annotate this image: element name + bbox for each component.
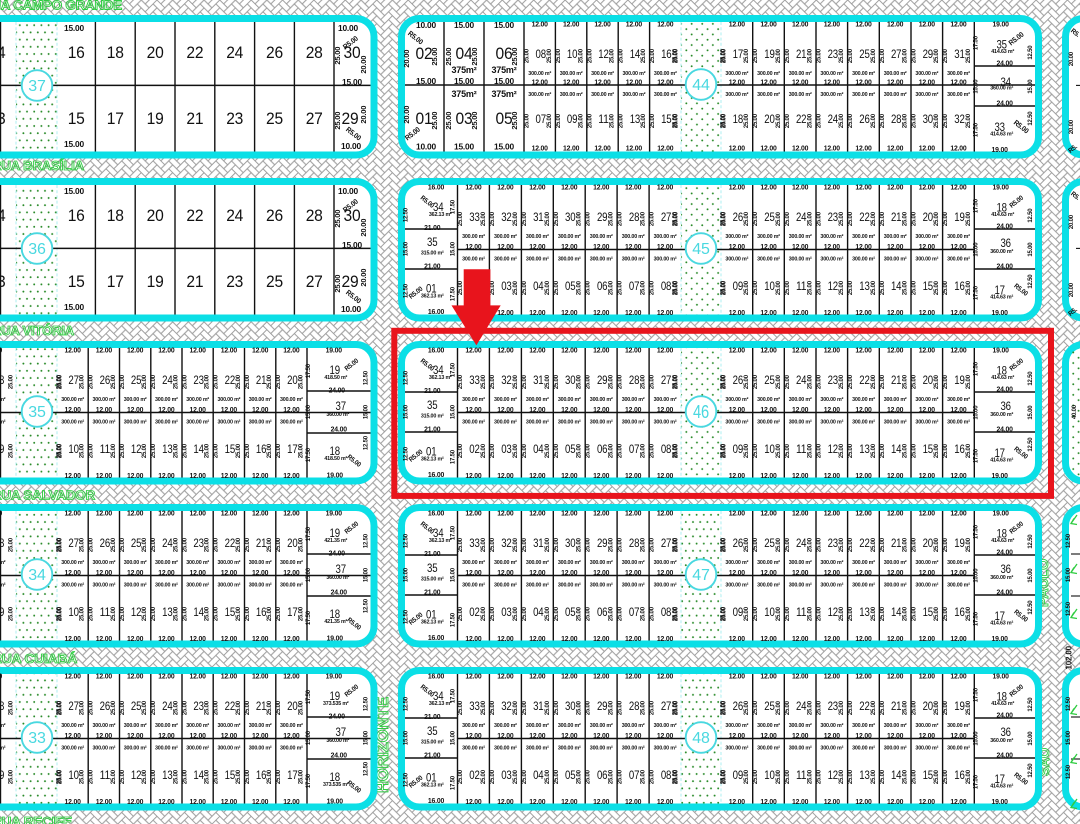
svg-text:15.00: 15.00: [64, 186, 85, 196]
svg-text:20: 20: [923, 373, 934, 387]
svg-text:20.00: 20.00: [1068, 282, 1075, 297]
svg-text:23: 23: [226, 109, 243, 128]
svg-text:12.50: 12.50: [403, 772, 410, 787]
svg-text:25.00: 25.00: [275, 374, 282, 389]
svg-text:300.00 m²: 300.00 m²: [725, 419, 748, 426]
svg-text:25.00: 25.00: [838, 700, 845, 715]
svg-text:25.00: 25.00: [141, 537, 148, 552]
svg-text:300.00 m²: 300.00 m²: [884, 745, 907, 752]
svg-text:12.00: 12.00: [824, 634, 840, 643]
svg-text:12.00: 12.00: [950, 78, 966, 87]
svg-text:12.00: 12.00: [919, 183, 935, 192]
svg-text:25.00: 25.00: [244, 700, 251, 715]
svg-text:12.00: 12.00: [729, 183, 745, 192]
svg-text:15.00: 15.00: [1027, 568, 1034, 583]
svg-text:12.00: 12.00: [158, 731, 174, 740]
svg-text:19.00: 19.00: [992, 634, 1008, 643]
svg-text:12.00: 12.00: [887, 568, 903, 577]
svg-text:373.535 m²: 373.535 m²: [323, 700, 349, 707]
svg-text:25.00: 25.00: [79, 769, 86, 784]
svg-text:300.00 m²: 300.00 m²: [61, 582, 84, 589]
svg-text:12.00: 12.00: [657, 144, 673, 153]
svg-text:RUA RECIFE: RUA RECIFE: [0, 815, 72, 824]
svg-text:28: 28: [306, 43, 323, 62]
svg-text:25.00: 25.00: [933, 113, 940, 128]
svg-text:31: 31: [533, 373, 544, 387]
svg-text:10: 10: [764, 605, 775, 619]
svg-text:25.00: 25.00: [649, 606, 656, 621]
svg-text:12.00: 12.00: [729, 308, 745, 317]
svg-text:25.00: 25.00: [870, 280, 877, 295]
svg-text:25.00: 25.00: [910, 606, 917, 621]
svg-text:300.00 m²: 300.00 m²: [494, 396, 517, 403]
svg-text:12.00: 12.00: [657, 471, 673, 480]
svg-text:31: 31: [954, 47, 965, 61]
svg-text:12.00: 12.00: [919, 568, 935, 577]
svg-text:25.00: 25.00: [150, 443, 157, 458]
svg-text:25.00: 25.00: [235, 700, 242, 715]
svg-text:25.00: 25.00: [235, 374, 242, 389]
svg-text:12.00: 12.00: [625, 405, 641, 414]
svg-text:16.00: 16.00: [428, 796, 444, 805]
svg-text:300.00 m²: 300.00 m²: [61, 745, 84, 752]
svg-text:25.00: 25.00: [673, 211, 680, 226]
svg-text:25.00: 25.00: [617, 606, 624, 621]
svg-text:300.00 m²: 300.00 m²: [725, 722, 748, 729]
svg-text:25.00: 25.00: [649, 280, 656, 295]
svg-text:25.00: 25.00: [544, 769, 551, 784]
svg-text:12.50: 12.50: [363, 761, 370, 776]
svg-text:12.00: 12.00: [919, 308, 935, 317]
svg-text:25: 25: [764, 373, 775, 387]
svg-text:360.00 m²: 360.00 m²: [326, 737, 349, 744]
svg-text:12.00: 12.00: [532, 144, 548, 153]
svg-text:12.00: 12.00: [252, 568, 268, 577]
svg-text:25.00: 25.00: [775, 700, 782, 715]
svg-text:12.00: 12.00: [65, 405, 81, 414]
svg-text:17.50: 17.50: [972, 687, 979, 702]
svg-text:25.00: 25.00: [173, 374, 180, 389]
svg-text:24: 24: [828, 112, 839, 126]
svg-text:25.00: 25.00: [182, 700, 189, 715]
svg-text:25.00: 25.00: [480, 700, 487, 715]
svg-text:16: 16: [954, 605, 965, 619]
svg-text:27: 27: [68, 373, 79, 387]
svg-text:25.00: 25.00: [119, 374, 126, 389]
svg-text:RUA VITÓRIA: RUA VITÓRIA: [0, 323, 74, 338]
svg-text:300.00 m²: 300.00 m²: [789, 559, 812, 566]
svg-text:25.00: 25.00: [585, 537, 592, 552]
svg-text:300.00 m²: 300.00 m²: [622, 419, 645, 426]
svg-text:25.00: 25.00: [8, 537, 15, 552]
svg-text:300.00 m²: 300.00 m²: [622, 722, 645, 729]
svg-text:25.00: 25.00: [752, 374, 759, 389]
svg-text:25.00: 25.00: [933, 606, 940, 621]
svg-text:15.00: 15.00: [403, 404, 410, 419]
svg-text:25.00: 25.00: [480, 443, 487, 458]
svg-text:21: 21: [186, 109, 203, 128]
svg-text:12.00: 12.00: [497, 346, 513, 355]
svg-text:12.00: 12.00: [887, 797, 903, 806]
svg-text:25.00: 25.00: [298, 606, 305, 621]
svg-text:25.00: 25.00: [870, 113, 877, 128]
svg-text:12.00: 12.00: [221, 471, 237, 480]
svg-text:29: 29: [923, 47, 934, 61]
svg-text:25.00: 25.00: [544, 211, 551, 226]
svg-text:300.00 m²: 300.00 m²: [186, 559, 209, 566]
svg-text:12.50: 12.50: [363, 598, 370, 613]
svg-text:12.00: 12.00: [760, 634, 776, 643]
svg-text:11: 11: [100, 605, 111, 619]
svg-text:25.00: 25.00: [512, 537, 519, 552]
svg-text:300.00 m²: 300.00 m²: [558, 419, 581, 426]
svg-text:25.00: 25.00: [815, 606, 822, 621]
svg-text:12.00: 12.00: [127, 634, 143, 643]
svg-text:25: 25: [859, 47, 870, 61]
svg-text:12.00: 12.00: [729, 405, 745, 414]
svg-text:12.00: 12.00: [729, 568, 745, 577]
svg-text:300.00 m²: 300.00 m²: [280, 419, 303, 426]
svg-text:12.00: 12.00: [593, 346, 609, 355]
svg-text:10.00: 10.00: [416, 141, 437, 151]
svg-text:25.00: 25.00: [119, 443, 126, 458]
svg-text:300.00 m²: 300.00 m²: [789, 419, 812, 426]
svg-text:15.00: 15.00: [494, 141, 515, 151]
svg-text:15.00: 15.00: [305, 730, 312, 745]
svg-text:25.00: 25.00: [585, 374, 592, 389]
svg-text:12.00: 12.00: [729, 144, 745, 153]
svg-text:300.00 m²: 300.00 m²: [789, 233, 812, 240]
svg-text:362.13 m²: 362.13 m²: [429, 537, 452, 544]
svg-text:25.00: 25.00: [235, 537, 242, 552]
svg-text:25.00: 25.00: [965, 769, 972, 784]
svg-text:12.00: 12.00: [190, 797, 206, 806]
svg-text:27: 27: [891, 47, 902, 61]
svg-text:12.00: 12.00: [792, 144, 808, 153]
svg-text:25.00: 25.00: [720, 211, 727, 226]
svg-text:300.00 m²: 300.00 m²: [526, 559, 549, 566]
svg-text:12.00: 12.00: [824, 405, 840, 414]
svg-text:25.00: 25.00: [182, 443, 189, 458]
svg-text:30: 30: [923, 112, 934, 126]
svg-text:25.00: 25.00: [298, 769, 305, 784]
svg-text:12.00: 12.00: [792, 346, 808, 355]
svg-text:40.00: 40.00: [1071, 404, 1078, 419]
svg-text:12.00: 12.00: [855, 405, 871, 414]
svg-text:05: 05: [565, 768, 576, 782]
svg-text:04: 04: [533, 442, 544, 456]
svg-text:15.00: 15.00: [305, 404, 312, 419]
svg-text:13: 13: [859, 279, 870, 293]
svg-text:25.00: 25.00: [838, 443, 845, 458]
svg-text:300.00 m²: 300.00 m²: [820, 419, 843, 426]
svg-text:19.00: 19.00: [326, 346, 342, 355]
svg-text:25.00: 25.00: [965, 113, 972, 128]
svg-text:12.00: 12.00: [221, 634, 237, 643]
svg-text:12.50: 12.50: [1065, 601, 1072, 616]
svg-text:12.00: 12.00: [855, 144, 871, 153]
svg-text:300.00 m²: 300.00 m²: [884, 70, 907, 77]
svg-text:414.63 m²: 414.63 m²: [991, 48, 1014, 55]
svg-text:25.00: 25.00: [585, 211, 592, 226]
svg-text:24: 24: [226, 206, 243, 225]
svg-text:03: 03: [501, 768, 512, 782]
svg-text:20: 20: [923, 536, 934, 550]
svg-text:17.50: 17.50: [972, 198, 979, 213]
svg-text:300.00 m²: 300.00 m²: [789, 582, 812, 589]
svg-text:25.00: 25.00: [815, 537, 822, 552]
svg-text:25.00: 25.00: [910, 280, 917, 295]
svg-text:12.00: 12.00: [657, 20, 673, 29]
svg-text:12.00: 12.00: [824, 797, 840, 806]
svg-text:48: 48: [692, 730, 710, 747]
svg-text:25.00: 25.00: [333, 47, 342, 65]
svg-text:33: 33: [28, 730, 46, 747]
svg-text:21: 21: [256, 699, 267, 713]
svg-text:25.00: 25.00: [942, 769, 949, 784]
svg-text:300.00 m²: 300.00 m²: [725, 256, 748, 263]
svg-text:25.00: 25.00: [333, 210, 342, 228]
svg-text:14: 14: [630, 47, 641, 61]
svg-text:300.00 m²: 300.00 m²: [725, 582, 748, 589]
svg-text:12.00: 12.00: [950, 634, 966, 643]
svg-text:12.00: 12.00: [919, 797, 935, 806]
svg-text:25.00: 25.00: [910, 700, 917, 715]
svg-text:12.00: 12.00: [919, 144, 935, 153]
svg-text:21: 21: [256, 373, 267, 387]
svg-text:12.00: 12.00: [887, 509, 903, 518]
svg-text:25.00: 25.00: [213, 769, 220, 784]
svg-text:25.00: 25.00: [524, 48, 531, 63]
svg-text:25.00: 25.00: [910, 374, 917, 389]
svg-text:15.00: 15.00: [403, 567, 410, 582]
svg-text:09: 09: [733, 768, 744, 782]
svg-text:12.00: 12.00: [252, 731, 268, 740]
svg-text:300.00 m²: 300.00 m²: [884, 256, 907, 263]
svg-text:20.00: 20.00: [359, 56, 368, 74]
svg-text:12.00: 12.00: [657, 568, 673, 577]
svg-text:25.00: 25.00: [608, 606, 615, 621]
svg-text:300.00 m²: 300.00 m²: [249, 419, 272, 426]
svg-text:12.00: 12.00: [561, 731, 577, 740]
svg-text:25.00: 25.00: [720, 113, 727, 128]
svg-text:25.00: 25.00: [784, 280, 791, 295]
svg-text:19.00: 19.00: [992, 797, 1008, 806]
svg-text:12.50: 12.50: [1065, 533, 1072, 548]
svg-text:12.00: 12.00: [283, 797, 299, 806]
svg-text:28: 28: [0, 373, 5, 387]
svg-text:362.13 m²: 362.13 m²: [421, 293, 444, 300]
svg-text:315.00 m²: 315.00 m²: [421, 576, 444, 583]
svg-text:25.00: 25.00: [512, 606, 519, 621]
svg-text:25.00: 25.00: [8, 700, 15, 715]
svg-text:25.00: 25.00: [489, 443, 496, 458]
svg-text:33: 33: [469, 210, 480, 224]
svg-text:16: 16: [954, 442, 965, 456]
svg-text:25.00: 25.00: [910, 443, 917, 458]
svg-text:20.00: 20.00: [1068, 51, 1075, 66]
svg-text:300.00 m²: 300.00 m²: [280, 745, 303, 752]
svg-text:12.00: 12.00: [283, 568, 299, 577]
svg-text:25: 25: [266, 272, 283, 291]
svg-text:12.00: 12.00: [252, 634, 268, 643]
svg-text:300.00 m²: 300.00 m²: [0, 582, 6, 589]
svg-text:300.00 m²: 300.00 m²: [526, 745, 549, 752]
svg-text:14: 14: [0, 43, 6, 62]
svg-text:300.00 m²: 300.00 m²: [217, 419, 240, 426]
svg-text:25.00: 25.00: [815, 374, 822, 389]
svg-text:25.00: 25.00: [838, 211, 845, 226]
svg-text:300.00 m²: 300.00 m²: [494, 559, 517, 566]
svg-text:25.00: 25.00: [544, 700, 551, 715]
svg-text:19.00: 19.00: [327, 634, 343, 643]
svg-text:25.00: 25.00: [512, 443, 519, 458]
svg-text:25.00: 25.00: [266, 374, 273, 389]
svg-text:25.00: 25.00: [512, 374, 519, 389]
svg-text:300.00 m²: 300.00 m²: [155, 396, 178, 403]
svg-text:12.00: 12.00: [127, 797, 143, 806]
svg-text:24: 24: [796, 373, 807, 387]
svg-text:12.00: 12.00: [65, 797, 81, 806]
svg-text:25.00: 25.00: [649, 211, 656, 226]
svg-text:12.50: 12.50: [403, 446, 410, 461]
svg-text:12.00: 12.00: [657, 308, 673, 317]
svg-text:25: 25: [131, 699, 142, 713]
svg-text:25.00: 25.00: [88, 374, 95, 389]
svg-text:15.00: 15.00: [403, 730, 410, 745]
svg-text:25.00: 25.00: [586, 113, 593, 128]
svg-text:12.00: 12.00: [950, 405, 966, 414]
svg-text:12.00: 12.00: [65, 471, 81, 480]
svg-text:18: 18: [107, 206, 124, 225]
svg-text:300.00 m²: 300.00 m²: [92, 582, 115, 589]
svg-text:12.00: 12.00: [950, 308, 966, 317]
svg-text:300.00 m²: 300.00 m²: [61, 722, 84, 729]
svg-text:25.00: 25.00: [673, 769, 680, 784]
svg-text:37: 37: [28, 78, 46, 95]
svg-text:25.00: 25.00: [521, 443, 528, 458]
svg-text:300.00 m²: 300.00 m²: [852, 70, 875, 77]
svg-text:20: 20: [287, 373, 298, 387]
svg-text:25.00: 25.00: [173, 606, 180, 621]
svg-text:25.00: 25.00: [266, 606, 273, 621]
svg-text:12.00: 12.00: [760, 144, 776, 153]
svg-text:12.50: 12.50: [1027, 534, 1034, 549]
svg-text:25.00: 25.00: [910, 113, 917, 128]
svg-text:12.50: 12.50: [1027, 437, 1034, 452]
svg-text:25.00: 25.00: [88, 443, 95, 458]
svg-text:35: 35: [28, 404, 46, 421]
svg-text:24.00: 24.00: [997, 385, 1013, 394]
svg-text:15.00: 15.00: [494, 76, 515, 86]
svg-text:25.00: 25.00: [640, 537, 647, 552]
svg-text:300.00 m²: 300.00 m²: [757, 722, 780, 729]
svg-text:17: 17: [733, 47, 744, 61]
svg-text:23: 23: [193, 373, 204, 387]
svg-text:12: 12: [828, 442, 839, 456]
svg-text:25.00: 25.00: [617, 280, 624, 295]
svg-text:12.00: 12.00: [561, 509, 577, 518]
svg-text:25.00: 25.00: [838, 374, 845, 389]
svg-text:25.00: 25.00: [576, 700, 583, 715]
svg-text:25.00: 25.00: [933, 280, 940, 295]
svg-text:13: 13: [859, 605, 870, 619]
svg-text:12.00: 12.00: [127, 405, 143, 414]
svg-text:07: 07: [629, 605, 640, 619]
svg-text:25.00: 25.00: [512, 280, 519, 295]
svg-text:30: 30: [344, 206, 361, 225]
svg-text:25.00: 25.00: [275, 606, 282, 621]
svg-text:05: 05: [565, 279, 576, 293]
svg-text:35: 35: [427, 398, 438, 412]
svg-text:25.00: 25.00: [910, 537, 917, 552]
svg-text:17.50: 17.50: [450, 362, 457, 377]
svg-text:25.00: 25.00: [204, 537, 211, 552]
svg-text:12.00: 12.00: [465, 797, 481, 806]
svg-text:12.00: 12.00: [760, 471, 776, 480]
svg-text:300.00 m²: 300.00 m²: [155, 419, 178, 426]
svg-text:12.00: 12.00: [127, 346, 143, 355]
svg-text:12.00: 12.00: [561, 242, 577, 251]
svg-text:15: 15: [225, 768, 236, 782]
svg-text:13: 13: [162, 768, 173, 782]
svg-text:300.00 m²: 300.00 m²: [590, 419, 613, 426]
svg-text:315.00 m²: 315.00 m²: [421, 250, 444, 257]
svg-text:15.00: 15.00: [1027, 731, 1034, 746]
svg-text:414.63 m²: 414.63 m²: [991, 700, 1014, 707]
svg-text:300.00 m²: 300.00 m²: [915, 722, 938, 729]
svg-text:19.00: 19.00: [992, 308, 1008, 317]
svg-text:12.00: 12.00: [96, 797, 112, 806]
svg-text:300.00 m²: 300.00 m²: [462, 745, 485, 752]
svg-text:25.00: 25.00: [608, 769, 615, 784]
svg-text:27: 27: [306, 272, 323, 291]
svg-text:12.00: 12.00: [855, 797, 871, 806]
svg-text:25.00: 25.00: [673, 700, 680, 715]
svg-text:12.00: 12.00: [729, 731, 745, 740]
svg-text:414.63 m²: 414.63 m²: [990, 457, 1013, 464]
svg-text:25.00: 25.00: [901, 443, 908, 458]
svg-text:25.00: 25.00: [141, 606, 148, 621]
svg-text:21.00: 21.00: [424, 549, 440, 558]
svg-text:25.00: 25.00: [673, 113, 680, 128]
svg-text:25.00: 25.00: [553, 606, 560, 621]
svg-text:25.00: 25.00: [470, 48, 479, 66]
svg-text:25.00: 25.00: [806, 606, 813, 621]
svg-text:25.00: 25.00: [640, 769, 647, 784]
svg-text:25.00: 25.00: [933, 48, 940, 63]
svg-text:300.00 m²: 300.00 m²: [217, 559, 240, 566]
svg-text:12.00: 12.00: [252, 797, 268, 806]
svg-text:300.00 m²: 300.00 m²: [947, 70, 970, 77]
svg-text:360.00 m²: 360.00 m²: [990, 737, 1013, 744]
svg-text:12.00: 12.00: [283, 731, 299, 740]
svg-text:12.00: 12.00: [657, 672, 673, 681]
svg-text:12.00: 12.00: [252, 509, 268, 518]
svg-text:29: 29: [597, 373, 608, 387]
svg-text:300.00 m²: 300.00 m²: [852, 419, 875, 426]
svg-text:24.00: 24.00: [331, 425, 347, 434]
svg-text:12.00: 12.00: [252, 346, 268, 355]
svg-text:25.00: 25.00: [608, 537, 615, 552]
svg-text:25.00: 25.00: [901, 211, 908, 226]
svg-text:25.00: 25.00: [965, 606, 972, 621]
svg-text:25.00: 25.00: [553, 700, 560, 715]
svg-text:25.00: 25.00: [617, 700, 624, 715]
svg-text:25.00: 25.00: [521, 537, 528, 552]
svg-text:02: 02: [469, 442, 480, 456]
svg-text:12.00: 12.00: [824, 78, 840, 87]
